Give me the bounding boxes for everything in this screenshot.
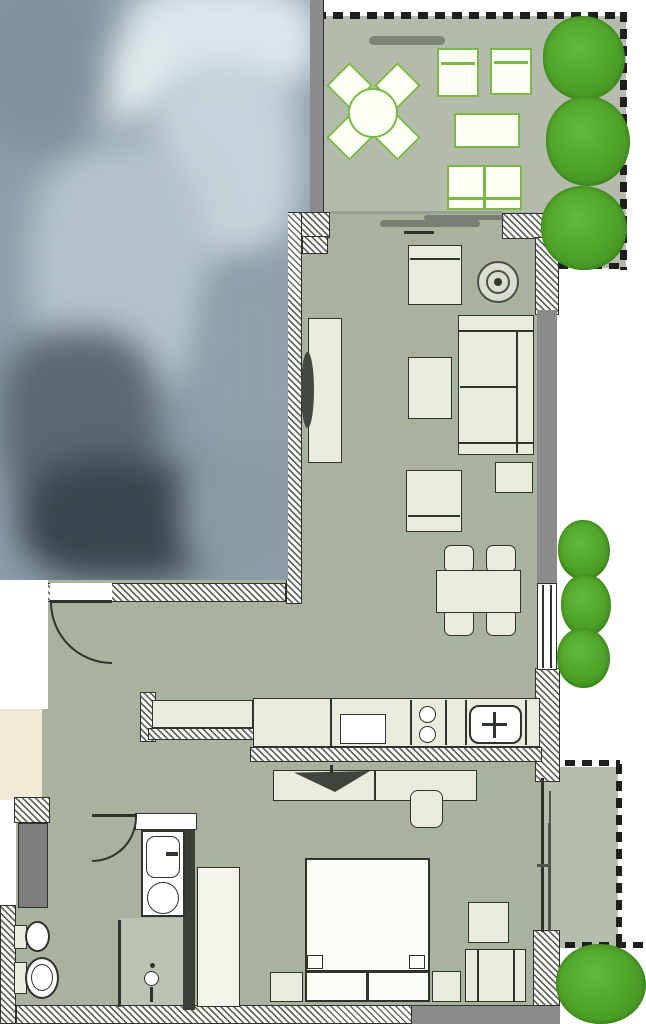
sofa-cushion-divider (460, 386, 516, 388)
blurred-region (0, 0, 310, 580)
living-top-left-wall-tab (302, 236, 328, 254)
hall-left-wall-jamb (14, 797, 50, 823)
nightstand-left (270, 972, 303, 1002)
white-mask-box (0, 575, 48, 709)
bed-fold-left (307, 955, 323, 969)
bedroom-side-table (468, 902, 509, 943)
dishwasher (340, 714, 386, 744)
round-dining-table (348, 88, 398, 138)
dining-chair-1 (444, 545, 474, 573)
toilet-bowl (25, 921, 50, 952)
sofa-bottom-armrest-line (459, 442, 533, 444)
plant-stem (548, 823, 551, 931)
bathroom-tall-cabinet (18, 823, 48, 908)
sun-lounger-1 (437, 48, 479, 97)
lounge-chair-2 (406, 470, 462, 532)
desk-sideboard-divider (374, 771, 376, 800)
sofa-back-line (516, 331, 518, 453)
bed-fold-right (409, 955, 425, 969)
living-right-window (537, 583, 557, 670)
vanity-sink (146, 836, 180, 878)
wardrobe (197, 867, 240, 1007)
living-shadow-streak-1 (380, 220, 480, 227)
living-right-window-mullion-1 (542, 585, 544, 668)
counter-divider-4 (465, 700, 467, 745)
plant-tip (549, 791, 551, 825)
counter-divider-1 (330, 698, 332, 747)
bidet-bowl-inner (31, 964, 53, 991)
garden-bush-bottom (556, 944, 646, 1024)
sun-lounger-1-headrest-line (441, 62, 475, 65)
sofa-side-table (495, 462, 533, 493)
tv-screen (301, 352, 314, 428)
bottom-wall-solid (412, 1005, 560, 1024)
cooktop-burner-2 (419, 726, 436, 743)
terrace-left-wall (308, 0, 324, 212)
adjacent-unit-beige-area (0, 708, 42, 800)
kitchen-counter-left (152, 700, 253, 728)
lounge-chair-2-back-line (408, 515, 460, 517)
counter-divider-5 (525, 700, 527, 745)
sink-faucet-horizontal (482, 723, 507, 726)
hedge-tree-2 (546, 96, 630, 186)
hedge-bush-mid-3 (557, 628, 610, 688)
round-pouf-center-dot (494, 278, 502, 286)
bedroom-armchair-arm-left (477, 950, 479, 1001)
bottom-wall-hatched (16, 1005, 412, 1024)
plant-branch (537, 864, 549, 867)
floor-plan: B (0, 0, 646, 1024)
cooktop-burner-1 (419, 706, 436, 723)
sun-lounger-2-headrest-line (494, 61, 528, 64)
hedge-tree-3 (541, 186, 627, 270)
door-threshold-tick (404, 231, 434, 234)
terrace-bench-divider (483, 167, 486, 208)
kitchen-wall-left-strip (148, 728, 255, 740)
bedroom-right-pillar (533, 930, 560, 1007)
kitchen-bedroom-dividing-wall (250, 747, 542, 762)
armchair (408, 245, 462, 305)
hedge-bush-mid-2 (561, 574, 611, 636)
terrace-bench-back-line (449, 197, 520, 200)
sun-lounger-2 (490, 48, 532, 95)
vanity-faucet (166, 852, 178, 856)
washing-machine (147, 882, 179, 914)
living-right-wall-solid (537, 310, 557, 584)
armchair-back-line (410, 258, 460, 260)
desk-chair (410, 790, 443, 828)
living-right-window-mullion-2 (550, 585, 552, 668)
living-shadow-streak-2 (424, 215, 504, 220)
bathroom-top-wall (135, 813, 197, 830)
shower-drain-stem (150, 987, 153, 1002)
counter-divider-2 (410, 700, 412, 745)
living-left-wall (286, 212, 302, 604)
terrace-sliding-door-line (330, 211, 502, 214)
bed-duvet-split (366, 972, 369, 1002)
outdoor-garden-strip (543, 767, 618, 948)
shower-drain-dot (150, 963, 155, 968)
terrace-shadow-streak (369, 36, 445, 45)
blur-blob-mid-1 (0, 0, 110, 150)
terrace-coffee-table (454, 113, 520, 148)
counter-divider-3 (445, 700, 447, 745)
bedroom-armchair-arm-right (513, 950, 515, 1001)
bedroom-armchair (465, 949, 526, 1002)
sofa-top-armrest-line (459, 330, 533, 332)
sofa (458, 315, 534, 455)
nightstand-right (432, 971, 461, 1002)
shower-partition-wall (118, 920, 121, 1007)
tv-flat-stand (330, 765, 333, 773)
dining-table (436, 570, 521, 613)
hedge-bush-mid-1 (558, 520, 610, 580)
garden-boundary-right-dashed (616, 764, 622, 948)
bedroom-window-line (541, 778, 544, 932)
hedge-tree-1 (543, 16, 625, 100)
lounge-chair (408, 357, 452, 419)
dining-chair-2 (486, 545, 516, 573)
shower-drain-ring (144, 971, 159, 986)
